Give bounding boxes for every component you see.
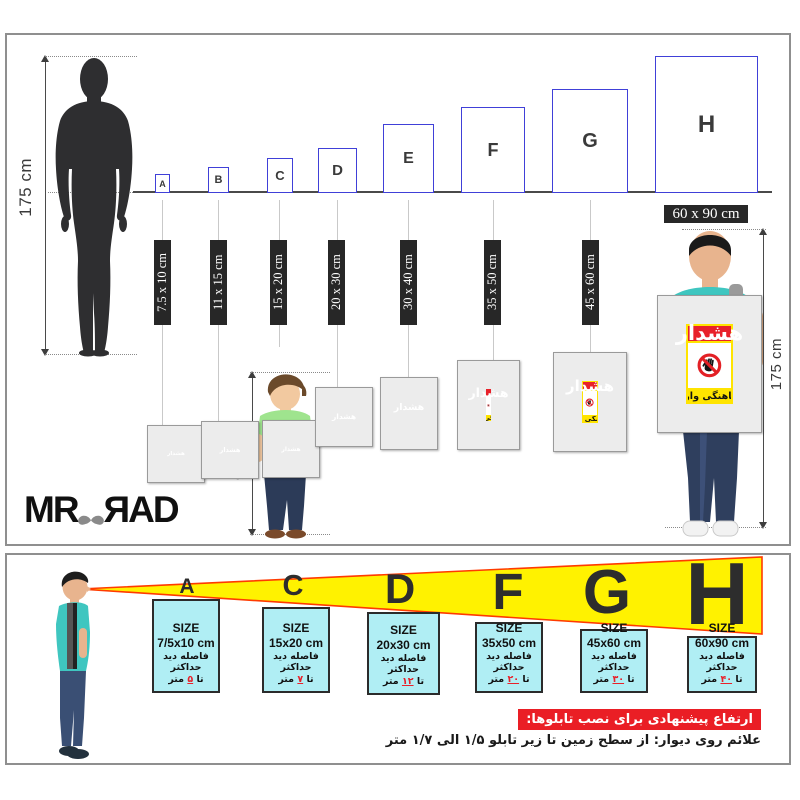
distance-value: تا ۱۲ متر: [383, 676, 424, 687]
cone-letter-f: F: [492, 566, 523, 617]
distance-value: تا ۳۰ متر: [593, 674, 634, 685]
distance-unit: متر: [701, 674, 717, 685]
sign-pictogram-area: [583, 391, 598, 415]
warning-sign-h: هشدار بدون هماهنگی وارد نشوید: [657, 295, 762, 433]
size-label-g: 45 x 60 cm: [582, 240, 599, 325]
size-title: SIZE: [709, 621, 736, 635]
warning-sign-a: هشدار بدون هماهنگی وارد نشوید: [147, 425, 205, 483]
distance-caption: فاصله دید حداکثر: [477, 651, 541, 673]
distance-box-g: SIZE 45x60 cm فاصله دید حداکثر تا ۳۰ متر: [580, 629, 648, 693]
distance-box-c: SIZE 15x20 cm فاصله دید حداکثر تا ۷ متر: [262, 607, 330, 693]
size-box-letter: B: [215, 174, 223, 186]
cone-letter-d: D: [385, 568, 415, 610]
warning-sign-d: هشدار بدون هماهنگی وارد نشوید: [315, 387, 373, 447]
size-value: 7/5x10 cm: [157, 636, 214, 650]
size-box-letter: D: [332, 162, 343, 179]
no-entry-hand-icon: [585, 398, 594, 407]
install-height-heading: ارتفاع پیشنهادی برای نصب تابلوها:: [518, 709, 761, 730]
distance-unit: متر: [488, 674, 504, 685]
size-title: SIZE: [601, 621, 628, 635]
warning-sign-b: هشدار بدون هماهنگی وارد نشوید: [201, 421, 259, 479]
cone-letter-g: G: [583, 562, 631, 624]
sign-header: هشدار: [583, 382, 598, 390]
size-box-a: A: [155, 174, 170, 193]
sign-footer: بدون هماهنگی وارد نشوید: [486, 416, 491, 421]
sign-header: هشدار: [486, 389, 491, 395]
size-title: SIZE: [496, 621, 523, 635]
distance-box-a: SIZE 7/5x10 cm فاصله دید حداکثر تا ۵ متر: [152, 599, 220, 693]
distance-number: ۳۰: [612, 674, 624, 685]
sign-header: هشدار: [688, 326, 731, 341]
no-entry-hand-icon: [487, 404, 490, 407]
sign-body: هشدار بدون هماهنگی وارد نشوید: [582, 381, 598, 423]
size-value: 60x90 cm: [695, 636, 749, 650]
size-label-b: 11 x 15 cm: [210, 240, 227, 325]
warning-sign-g: هشدار بدون هماهنگی وارد نشوید: [553, 352, 627, 452]
sign-footer: بدون هماهنگی وارد نشوید: [688, 390, 731, 402]
distance-number: ۵: [187, 674, 193, 685]
size-value: 20x30 cm: [376, 638, 430, 652]
warning-sign-f: هشدار بدون هماهنگی وارد نشوید: [457, 360, 520, 450]
distance-number: ۱۲: [402, 676, 414, 687]
distance-value: تا ۵ متر: [168, 674, 203, 685]
distance-caption: فاصله دید حداکثر: [154, 651, 218, 673]
man-height-label: 175 cm: [768, 338, 785, 390]
sign-footer: بدون هماهنگی وارد نشوید: [583, 416, 598, 423]
distance-caption: فاصله دید حداکثر: [582, 651, 646, 673]
distance-unit: متر: [168, 674, 184, 685]
size-label-c: 15 x 20 cm: [270, 240, 287, 325]
distance-box-d: SIZE 20x30 cm فاصله دید حداکثر تا ۱۲ متر: [367, 612, 440, 695]
distance-caption: فاصله دید حداکثر: [264, 651, 328, 673]
size-box-g: G: [552, 89, 628, 193]
distance-box-h: SIZE 60x90 cm فاصله دید حداکثر تا ۴۰ متر: [687, 636, 757, 693]
cone-letter-a: A: [179, 576, 194, 597]
size-label-d: 20 x 30 cm: [328, 240, 345, 325]
mustache-icon: [77, 514, 105, 527]
distance-value: تا ۴۰ متر: [701, 674, 742, 685]
size-box-h: H: [655, 56, 758, 193]
distance-to: تا: [627, 674, 634, 685]
size-box-c: C: [267, 158, 293, 193]
size-label-e: 30 x 40 cm: [400, 240, 417, 325]
distance-to: تا: [196, 674, 203, 685]
distance-unit: متر: [278, 674, 294, 685]
distance-caption: فاصله دید حداکثر: [369, 653, 438, 675]
install-height-note: علائم روی دیوار: از سطح زمین تا زیر تابل…: [386, 733, 761, 748]
distance-to: تا: [306, 674, 313, 685]
size-box-letter: F: [488, 140, 499, 161]
distance-to: تا: [735, 674, 742, 685]
size-box-letter: C: [275, 168, 284, 183]
distance-number: ۲۰: [507, 674, 519, 685]
size-title: SIZE: [390, 623, 417, 637]
distance-unit: متر: [593, 674, 609, 685]
distance-number: ۷: [297, 674, 303, 685]
man-profile-figure: [45, 570, 125, 762]
distance-unit: متر: [383, 676, 399, 687]
adult-silhouette: [48, 57, 140, 357]
distance-value: تا ۷ متر: [278, 674, 313, 685]
distance-to: تا: [417, 676, 424, 687]
size-title: SIZE: [173, 621, 200, 635]
size-value: 45x60 cm: [587, 636, 641, 650]
size-box-d: D: [318, 148, 357, 193]
sign-body: هشدار بدون هماهنگی وارد نشوید: [686, 324, 733, 404]
cone-letter-c: C: [283, 572, 304, 601]
distance-to: تا: [522, 674, 529, 685]
size-box-letter: E: [403, 150, 414, 168]
distance-caption: فاصله دید حداکثر: [689, 651, 755, 673]
sign-body: هشدار بدون هماهنگی وارد نشوید: [486, 389, 491, 421]
size-box-letter: A: [159, 179, 166, 189]
size-label-a: 7.5 x 10 cm: [154, 240, 171, 325]
size-box-letter: H: [698, 111, 715, 139]
size-title: SIZE: [283, 621, 310, 635]
brand-logo: MR ЯAD: [24, 491, 178, 528]
size-value: 15x20 cm: [269, 636, 323, 650]
logo-text-right: ЯAD: [104, 491, 178, 528]
distance-number: ۴۰: [720, 674, 732, 685]
warning-sign-e: هشدار بدون هماهنگی وارد نشوید: [380, 377, 438, 450]
size-box-e: E: [383, 124, 434, 193]
size-label-f: 35 x 50 cm: [484, 240, 501, 325]
size-box-b: B: [208, 167, 229, 193]
size-box-letter: G: [582, 130, 598, 153]
size-value: 35x50 cm: [482, 636, 536, 650]
person-height-label: 175 cm: [16, 158, 36, 217]
sign-pictogram-area: [486, 396, 491, 415]
size-label-h: 60 x 90 cm: [664, 205, 748, 223]
sign-pictogram-area: [688, 343, 731, 388]
size-box-f: F: [461, 107, 525, 193]
distance-value: تا ۲۰ متر: [488, 674, 529, 685]
no-entry-hand-icon: [696, 352, 723, 379]
logo-text-left: MR: [24, 491, 78, 528]
height-measure-line: [45, 58, 46, 354]
warning-sign-c: هشدار بدون هماهنگی وارد نشوید: [262, 420, 320, 478]
distance-box-f: SIZE 35x50 cm فاصله دید حداکثر تا ۲۰ متر: [475, 622, 543, 693]
